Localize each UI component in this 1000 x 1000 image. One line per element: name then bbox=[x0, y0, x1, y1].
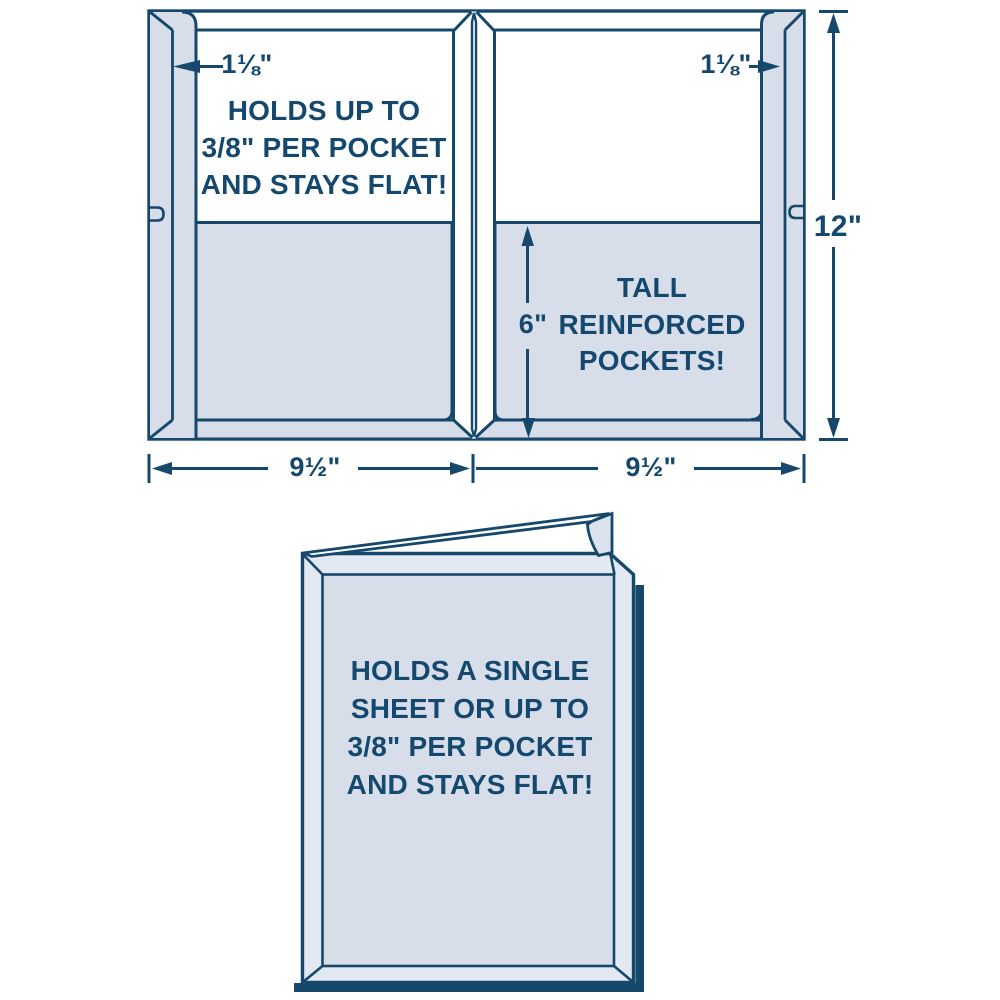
folder-diagram-canvas: 1⅛" 1⅛" 12" 6" 9½" 9½" HOLDS UP TO 3/8" … bbox=[0, 0, 1000, 1000]
closed-folder-caption-line-3: 3/8" PER POCKET bbox=[347, 728, 594, 766]
dim-label-right-flap-width: 1⅛" bbox=[700, 51, 751, 78]
dim-label-pocket-height: 6" bbox=[519, 311, 547, 338]
right-flap-fill bbox=[762, 12, 804, 438]
spine-fill bbox=[454, 12, 495, 439]
closed-folder-caption-line-2: SHEET OR UP TO bbox=[347, 690, 594, 728]
left-panel-caption: HOLDS UP TO 3/8" PER POCKET AND STAYS FL… bbox=[201, 92, 448, 203]
closed-folder-caption-line-1: HOLDS A SINGLE bbox=[347, 652, 594, 690]
back-cover-sheet bbox=[303, 514, 610, 557]
dim-label-right-panel-width: 9½" bbox=[625, 454, 676, 481]
closed-folder-caption-line-4: AND STAYS FLAT! bbox=[347, 766, 594, 804]
left-panel-caption-line-1: HOLDS UP TO bbox=[201, 92, 448, 129]
dim-label-height: 12" bbox=[814, 212, 863, 242]
right-pocket-caption: TALL REINFORCED POCKETS! bbox=[558, 270, 745, 380]
right-pocket-caption-line-1: TALL bbox=[558, 270, 745, 307]
left-panel-caption-line-2: 3/8" PER POCKET bbox=[201, 129, 448, 166]
open-folder-diagram bbox=[149, 11, 848, 483]
right-pocket-caption-line-3: POCKETS! bbox=[558, 343, 745, 380]
dim-label-left-flap-width: 1⅛" bbox=[221, 51, 272, 78]
folder-line-art bbox=[0, 0, 1000, 1000]
left-panel-caption-line-3: AND STAYS FLAT! bbox=[201, 166, 448, 203]
dim-label-left-panel-width: 9½" bbox=[289, 454, 340, 481]
closed-folder-caption: HOLDS A SINGLE SHEET OR UP TO 3/8" PER P… bbox=[347, 652, 594, 804]
dimension-panel-widths bbox=[149, 454, 804, 483]
right-pocket-caption-line-2: REINFORCED bbox=[558, 307, 745, 344]
